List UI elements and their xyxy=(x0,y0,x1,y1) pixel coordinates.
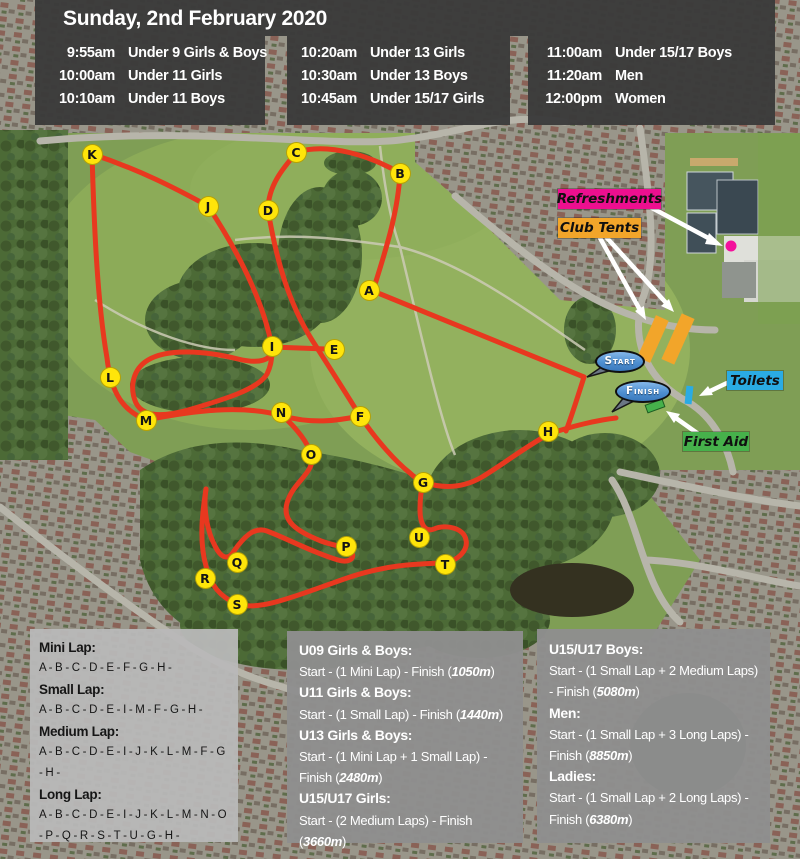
poi-label-club-tents: Club Tents xyxy=(558,218,641,238)
lap-name: Small Lap: xyxy=(39,679,229,700)
race-description: Start - (1 Mini Lap + 1 Small Lap) - Fin… xyxy=(299,746,511,788)
schedule-row: 10:45amUnder 15/17 Girls xyxy=(297,87,510,110)
header: 9:55amUnder 9 Girls & Boys10:00amUnder 1… xyxy=(35,0,775,125)
schedule-time: 10:00am xyxy=(55,68,115,84)
paren-close: ) xyxy=(342,834,346,849)
schedule-time: 12:00pm xyxy=(542,91,602,107)
poi-label-toilets: Toilets xyxy=(727,371,783,390)
schedule-time: 10:30am xyxy=(297,68,357,84)
schedule-row: 10:10amUnder 11 Boys xyxy=(55,87,265,110)
schedule-time: 10:20am xyxy=(297,45,357,61)
schedule-row: 11:00amUnder 15/17 Boys xyxy=(542,41,775,64)
race-map-flyer: ABCDEFGHIJKLMNOPQRSTU RefreshmentsClub T… xyxy=(0,0,800,859)
paren-close: ) xyxy=(378,770,382,785)
course-marker-k: K xyxy=(82,144,103,165)
schedule-column-1: 9:55amUnder 9 Girls & Boys10:00amUnder 1… xyxy=(35,36,265,125)
lap-sequence: A - B - C - D - E - I - J - K - L - M - … xyxy=(39,742,229,784)
race-distance: 6380m xyxy=(589,812,628,827)
bubble-finish: Finish xyxy=(615,380,671,403)
course-marker-m: M xyxy=(136,410,157,431)
schedule-time: 11:20am xyxy=(542,68,602,84)
paren-close: ) xyxy=(499,707,503,722)
race-description: Start - (1 Small Lap + 2 Long Laps) - Fi… xyxy=(549,787,758,829)
race-description: Start - (1 Mini Lap) - Finish (1050m) xyxy=(299,661,511,682)
poi-label-first-aid: First Aid xyxy=(683,432,749,451)
schedule-row: 9:55amUnder 9 Girls & Boys xyxy=(55,41,265,64)
schedule-event: Under 15/17 Girls xyxy=(370,91,484,107)
bubble-start: Start xyxy=(595,350,645,373)
race-name: U15/U17 Boys: xyxy=(549,639,758,660)
schedule-row: 12:00pmWomen xyxy=(542,87,775,110)
race-route: Start - (2 Medium Laps) - Finish xyxy=(299,813,472,828)
race-description: Start - (1 Small Lap) - Finish (1440m) xyxy=(299,704,511,725)
schedule-event: Under 11 Girls xyxy=(128,68,222,84)
paren-close: ) xyxy=(636,684,640,699)
race-name: U09 Girls & Boys: xyxy=(299,640,511,661)
lap-sequence: A - B - C - D - E - I - M - F - G - H - xyxy=(39,700,229,721)
race-distance: 5080m xyxy=(597,684,636,699)
schedule-time: 10:45am xyxy=(297,91,357,107)
schedule-time: 9:55am xyxy=(55,45,115,61)
race-description: Start - (1 Small Lap + 3 Long Laps) - Fi… xyxy=(549,724,758,766)
schedule-time: 10:10am xyxy=(55,91,115,107)
schedule-event: Under 11 Boys xyxy=(128,91,225,107)
course-marker-f: F xyxy=(350,406,371,427)
lap-name: Long Lap: xyxy=(39,784,229,805)
schedule-row: 10:00amUnder 11 Girls xyxy=(55,64,265,87)
schedule-event: Under 9 Girls & Boys xyxy=(128,45,267,61)
race-route: Start - (1 Small Lap + 3 Long Laps) - Fi… xyxy=(549,727,749,763)
club-tents-bars xyxy=(637,313,694,364)
race-distance: 1050m xyxy=(452,664,491,679)
race-distance: 3660m xyxy=(303,834,342,849)
lap-name: Mini Lap: xyxy=(39,637,229,658)
course-marker-e: E xyxy=(324,339,345,360)
race-name: U15/U17 Girls: xyxy=(299,788,511,809)
course-marker-i: I xyxy=(262,336,283,357)
senior-races-panel: U15/U17 Boys:Start - (1 Small Lap + 2 Me… xyxy=(537,629,770,843)
course-marker-h: H xyxy=(538,421,559,442)
course-marker-c: C xyxy=(286,142,307,163)
race-name: U11 Girls & Boys: xyxy=(299,682,511,703)
course-marker-j: J xyxy=(198,196,219,217)
race-distance: 1440m xyxy=(460,707,499,722)
refreshments-dot xyxy=(726,241,737,252)
lap-name: Medium Lap: xyxy=(39,721,229,742)
course-marker-o: O xyxy=(301,444,322,465)
schedule-event: Women xyxy=(615,91,666,107)
toilets-bar xyxy=(685,386,694,405)
lap-sequence: A - B - C - D - E - F - G - H - xyxy=(39,658,229,679)
course-marker-q: Q xyxy=(227,552,248,573)
paren-close: ) xyxy=(628,812,632,827)
paren-close: ) xyxy=(628,748,632,763)
lap-sequence: A - B - C - D - E - I - J - K - L - M - … xyxy=(39,805,229,847)
course-marker-d: D xyxy=(258,200,279,221)
course-marker-u: U xyxy=(409,527,430,548)
schedule-event: Under 15/17 Boys xyxy=(615,45,732,61)
course-marker-b: B xyxy=(390,163,411,184)
course-marker-n: N xyxy=(271,402,292,423)
junior-races-panel: U09 Girls & Boys:Start - (1 Mini Lap) - … xyxy=(287,631,523,843)
schedule-row: 11:20amMen xyxy=(542,64,775,87)
race-name: Men: xyxy=(549,703,758,724)
race-distance: 2480m xyxy=(339,770,378,785)
paren-close: ) xyxy=(491,664,495,679)
schedule-event: Under 13 Boys xyxy=(370,68,468,84)
course-marker-t: T xyxy=(435,554,456,575)
poi-label-refreshments: Refreshments xyxy=(558,189,661,209)
course-marker-s: S xyxy=(227,594,248,615)
schedule-event: Under 13 Girls xyxy=(370,45,465,61)
schedule-row: 10:30amUnder 13 Boys xyxy=(297,64,510,87)
race-route: Start - (1 Mini Lap) - Finish xyxy=(299,664,448,679)
race-route: Start - (1 Small Lap) - Finish xyxy=(299,707,456,722)
course-marker-r: R xyxy=(195,568,216,589)
schedule-event: Men xyxy=(615,68,643,84)
race-name: U13 Girls & Boys: xyxy=(299,725,511,746)
schedule-column-2: 10:20amUnder 13 Girls10:30amUnder 13 Boy… xyxy=(287,36,510,125)
course-marker-p: P xyxy=(336,536,357,557)
schedule-row: 10:20amUnder 13 Girls xyxy=(297,41,510,64)
lap-legend-panel: Mini Lap:A - B - C - D - E - F - G - H -… xyxy=(30,629,238,842)
page-title: Sunday, 2nd February 2020 xyxy=(63,7,327,31)
course-route xyxy=(92,149,616,606)
course-marker-l: L xyxy=(100,367,121,388)
race-distance: 8850m xyxy=(589,748,628,763)
race-route: Start - (1 Small Lap + 2 Medium Laps) - … xyxy=(549,663,758,699)
race-route: Start - (1 Small Lap + 2 Long Laps) - Fi… xyxy=(549,790,749,826)
race-description: Start - (2 Medium Laps) - Finish (3660m) xyxy=(299,810,511,852)
course-marker-a: A xyxy=(359,280,380,301)
schedule-time: 11:00am xyxy=(542,45,602,61)
schedule-column-3: 11:00amUnder 15/17 Boys11:20amMen12:00pm… xyxy=(528,36,775,125)
race-description: Start - (1 Small Lap + 2 Medium Laps) - … xyxy=(549,660,758,702)
race-route: Start - (1 Mini Lap + 1 Small Lap) - Fin… xyxy=(299,749,487,785)
course-marker-g: G xyxy=(413,472,434,493)
race-name: Ladies: xyxy=(549,766,758,787)
